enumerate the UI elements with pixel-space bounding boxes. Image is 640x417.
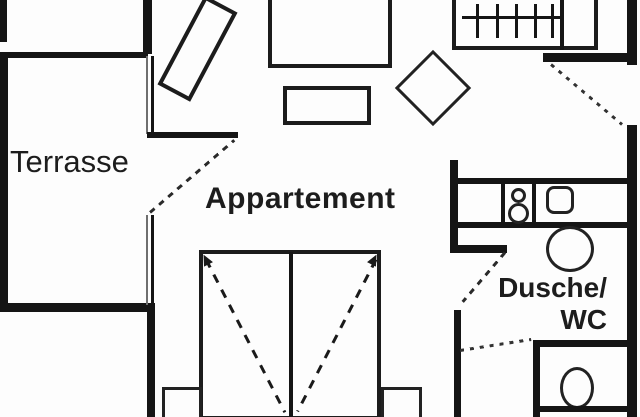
window xyxy=(146,215,148,305)
wall xyxy=(543,53,637,62)
wall xyxy=(533,340,637,347)
wall xyxy=(450,245,507,253)
hob-burner-icon xyxy=(511,188,526,203)
wall xyxy=(0,303,155,312)
wardrobe-divider xyxy=(560,0,564,50)
window xyxy=(151,56,154,134)
bathroom-label-line2: WC xyxy=(457,304,607,336)
window xyxy=(146,56,148,134)
hanger-icon xyxy=(551,4,554,38)
hanger-icon xyxy=(496,4,499,38)
kitchen-counter-edge xyxy=(455,222,627,228)
kitchen-counter-divider xyxy=(532,184,536,222)
window xyxy=(151,215,154,305)
kitchen-sink-icon xyxy=(546,186,574,214)
hanger-icon xyxy=(534,4,537,38)
wall xyxy=(143,0,152,54)
wall xyxy=(627,0,637,65)
wall xyxy=(0,52,148,58)
square-table xyxy=(395,50,471,126)
wall xyxy=(450,160,458,253)
bed-divider xyxy=(289,252,293,417)
wall xyxy=(147,303,155,417)
toilet-icon xyxy=(560,367,594,409)
apartment-label: Appartement xyxy=(205,182,396,216)
kitchen-counter-edge xyxy=(455,178,627,184)
wall xyxy=(627,125,637,417)
nightstand xyxy=(162,387,202,417)
hanger-icon xyxy=(515,4,518,38)
nightstand xyxy=(381,387,422,417)
wc-door-swing xyxy=(460,338,532,352)
bathroom-label-line1: Dusche/ xyxy=(457,272,607,304)
bathroom-label: Dusche/ WC xyxy=(457,272,607,336)
wall xyxy=(147,132,238,138)
coffee-table xyxy=(283,86,371,125)
wardrobe xyxy=(452,0,598,50)
sofa-table xyxy=(268,0,392,68)
wall xyxy=(0,0,7,42)
wall xyxy=(0,52,8,312)
washbasin-icon xyxy=(546,226,594,272)
hanger-icon xyxy=(476,4,479,38)
lounge-chair xyxy=(157,0,237,102)
floor-plan: Terrasse Appartement Dusche/ WC xyxy=(0,0,640,417)
kitchen-counter-divider xyxy=(501,184,505,222)
toilet-cistern xyxy=(536,406,627,412)
terrace-label: Terrasse xyxy=(10,144,129,180)
hob-burner-icon xyxy=(508,203,529,224)
entrance-door-swing xyxy=(550,63,623,125)
